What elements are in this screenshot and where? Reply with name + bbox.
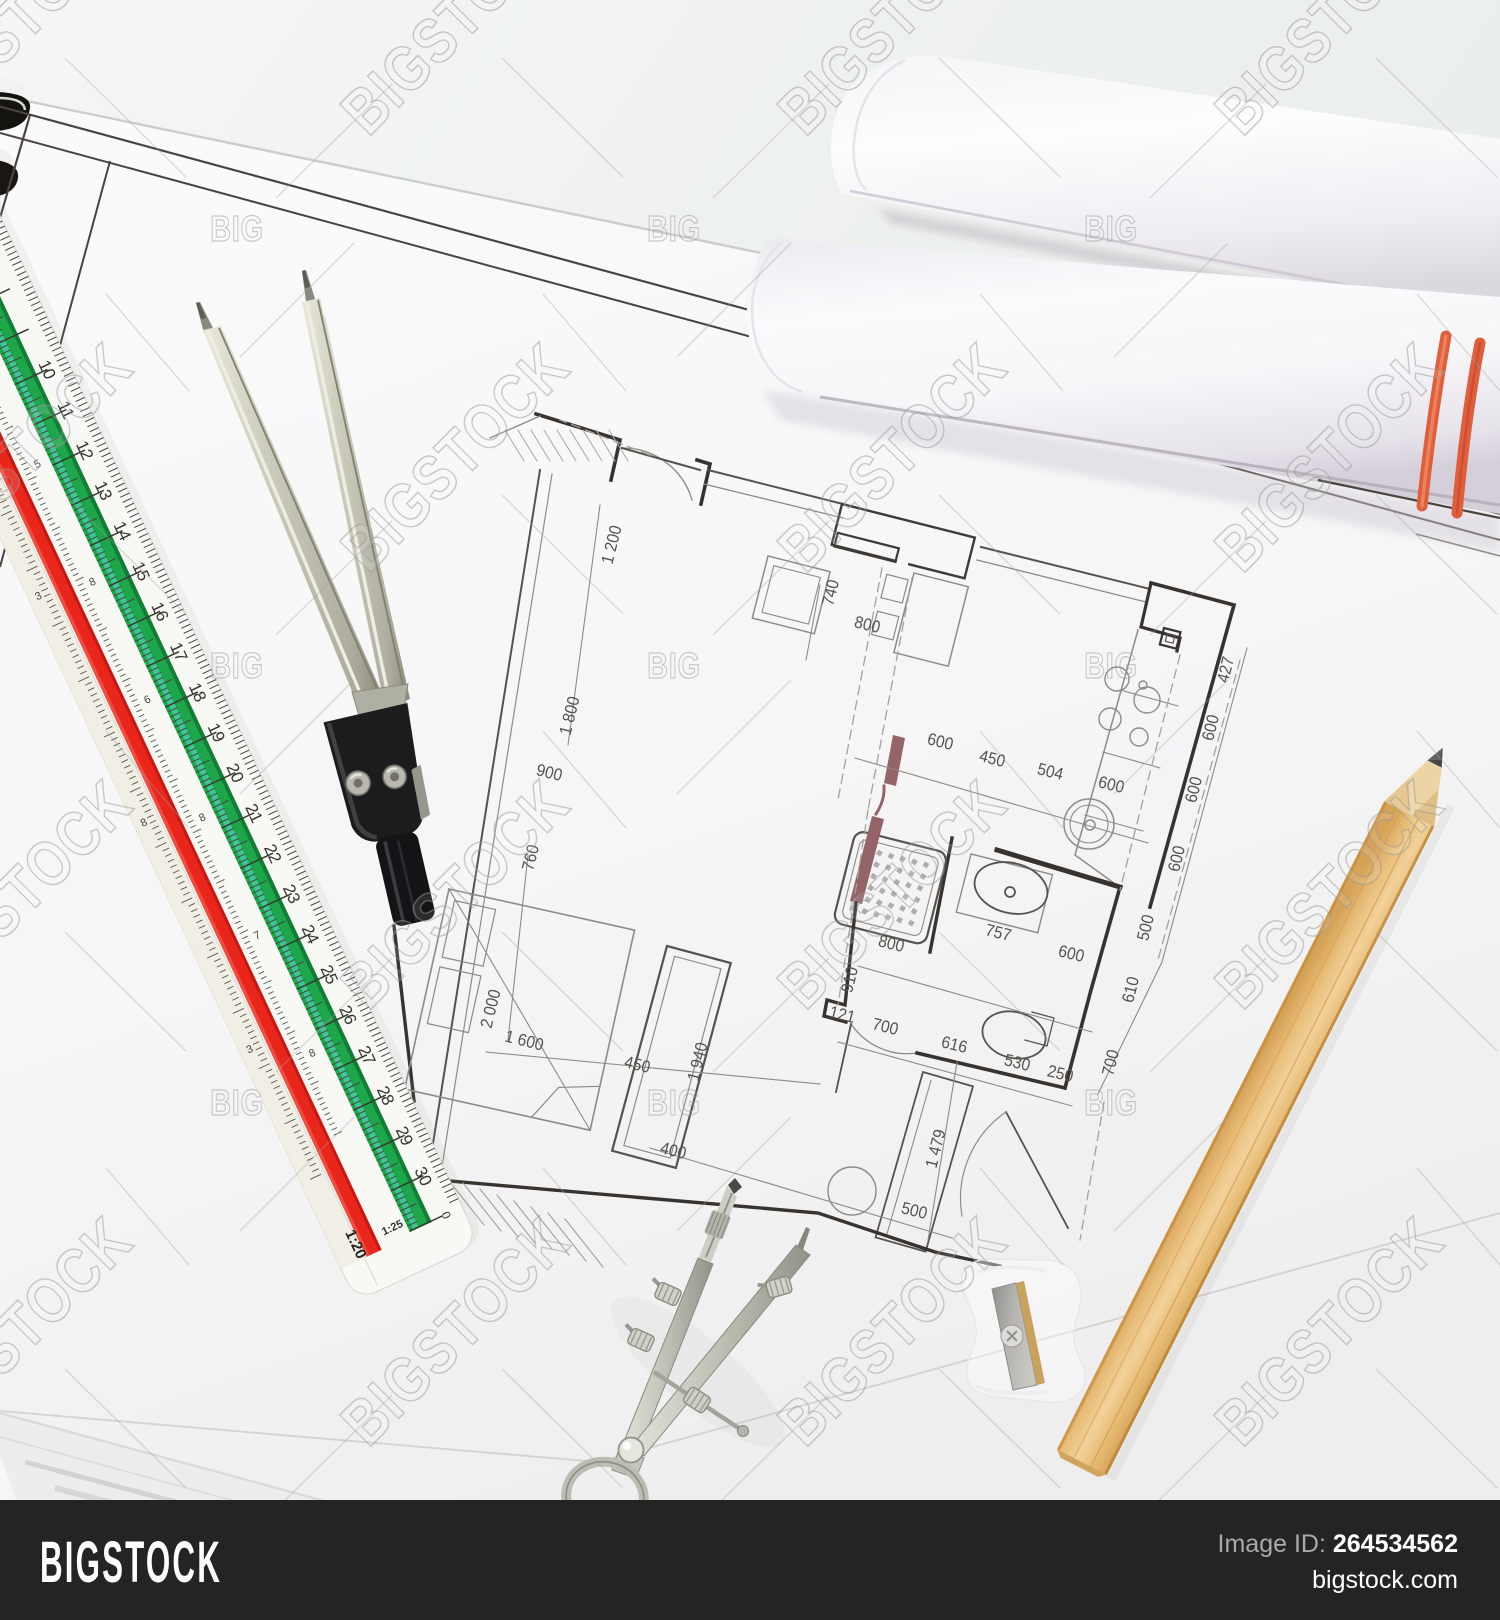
svg-text:BIG: BIG [1084, 1082, 1138, 1123]
svg-text:BIG: BIG [647, 645, 701, 686]
svg-text:bigstock.com: bigstock.com [1312, 1566, 1458, 1594]
svg-text:BIGSTOCK: BIGSTOCK [40, 1530, 222, 1595]
svg-text:BIG: BIG [647, 208, 701, 249]
svg-text:BIG: BIG [647, 1082, 701, 1123]
svg-text:BIG: BIG [1084, 645, 1138, 686]
svg-text:BIG: BIG [210, 1082, 264, 1123]
svg-text:BIG: BIG [210, 645, 264, 686]
svg-text:BIG: BIG [1084, 208, 1138, 249]
svg-text:BIG: BIG [210, 208, 264, 249]
svg-text:Image ID: 264534562: Image ID: 264534562 [1218, 1530, 1458, 1558]
